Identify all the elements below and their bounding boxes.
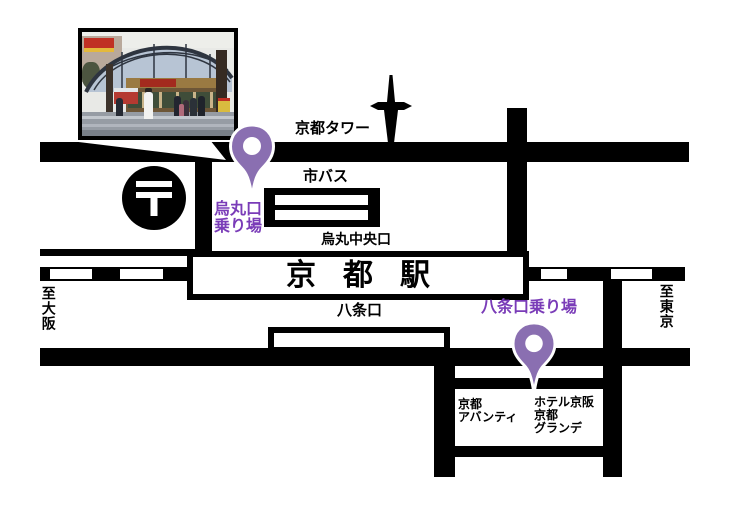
railway-east [529, 267, 685, 281]
post-office-icon [122, 166, 186, 230]
railway-tie [541, 269, 567, 279]
photo-ground-stripe [82, 124, 234, 127]
karasuma-central-exit-label: 烏丸中央口 [321, 232, 391, 247]
hotel-line3: グランデ [534, 422, 594, 435]
road-south-left-vertical [434, 348, 455, 477]
map-canvas: 京都駅 [0, 0, 729, 516]
hachijo-exit-label: 八条口 [337, 303, 382, 319]
city-bus-label: 市バス [303, 169, 348, 185]
photo-callout-wedge [60, 140, 230, 162]
to-tokyo-label: 至東京 [659, 284, 674, 329]
bus-platform [275, 210, 368, 220]
kyoto-station-box: 京都駅 [187, 251, 529, 300]
photo-ground-stripe [82, 116, 234, 119]
kyoto-tower-icon [370, 75, 412, 143]
road-northeast-vertical [507, 108, 527, 253]
photo-person [116, 98, 123, 116]
photo-person [190, 98, 197, 116]
avanti-line2: アバンティ [458, 411, 517, 424]
kyoto-station-label: 京都駅 [286, 261, 457, 291]
photo-person-child [179, 104, 184, 116]
to-osaka-label: 至大阪 [41, 286, 56, 331]
hachijo-stop-label: 八条口乗り場 [481, 300, 577, 317]
kyoto-tower-label: 京都タワー [295, 121, 370, 137]
railway-tie [50, 269, 92, 279]
railway-west [40, 267, 187, 281]
station-south-building [268, 327, 450, 353]
hachijo-stop-pin-icon [509, 320, 559, 398]
photo-building-sign [140, 79, 176, 87]
bus-platform [275, 195, 368, 205]
railway-tie [120, 269, 163, 279]
photo-ground-edge [82, 130, 234, 136]
karasuma-stop-label: 烏丸口 乗り場 [206, 202, 270, 236]
postal-mark-stem [151, 192, 158, 216]
hotel-block-border-bottom [448, 446, 606, 457]
photo-person [198, 96, 205, 116]
railway-tie [611, 269, 652, 279]
karasuma-stop-line1: 烏丸口 [206, 202, 270, 219]
karasuma-stop-line2: 乗り場 [206, 219, 270, 236]
karasuma-stop-pin-icon [227, 122, 277, 202]
road-station-front [40, 249, 195, 256]
kyoto-avanti-label: 京都 アバンティ [458, 398, 517, 424]
bus-terminal-icon [264, 188, 380, 227]
station-photo-inset [78, 28, 238, 140]
postal-mark-bar [136, 181, 172, 187]
hotel-keihan-label: ホテル京阪 京都 グランデ [534, 396, 594, 435]
photo-person-white-coat [144, 92, 153, 119]
